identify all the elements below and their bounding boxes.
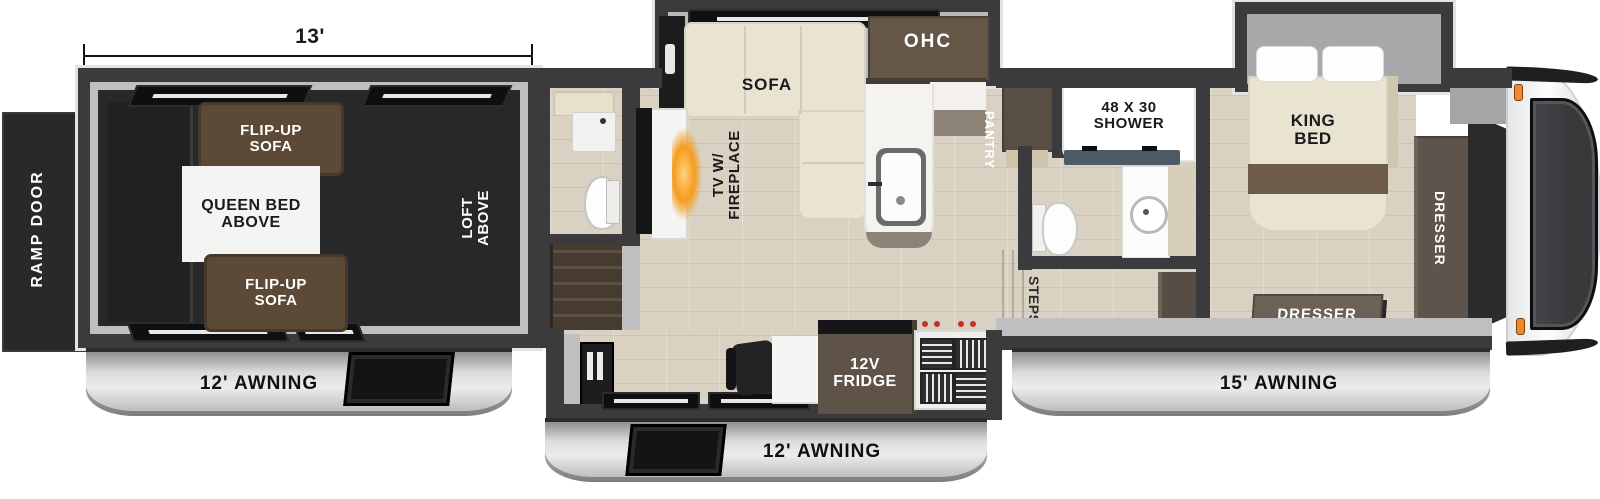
bedroom-awning-label: 15' AWNING [1164, 373, 1338, 395]
kitchen-counter-top [930, 82, 986, 110]
queen-bed-above-label: QUEEN BED ABOVE [201, 197, 301, 232]
chair-back [726, 348, 736, 390]
dimension-tick-left [83, 44, 85, 68]
ohc-label: OHC [878, 32, 978, 53]
garage-side-wall-panel [108, 102, 193, 322]
front-corner-filler [1450, 86, 1512, 124]
entry-door-window [587, 352, 593, 380]
bath-sink-icon [1130, 196, 1168, 234]
slideout-corner-window [665, 44, 675, 74]
ramp-door-label: RAMP DOOR [29, 129, 51, 329]
window-glass [382, 94, 491, 98]
tv-icon [636, 108, 652, 234]
burner-grate [920, 338, 954, 370]
sofa-seam [802, 162, 866, 164]
flip-up-sofa-bottom: FLIP-UP SOFA [204, 254, 348, 332]
bath-toilet-icon [1042, 202, 1078, 256]
window-glass [152, 94, 288, 98]
dimension-line [83, 55, 533, 57]
entry-door-window [597, 352, 603, 380]
entry-window-left [602, 392, 700, 410]
entry-step-garage [343, 352, 455, 406]
kitchen-lower-cabinet [934, 110, 986, 136]
burner-grate [920, 372, 954, 404]
side-table [772, 336, 820, 402]
stove-knob [958, 321, 964, 327]
kitchen-island-edge [866, 232, 932, 248]
entry-right-wall [986, 330, 1002, 420]
top-wall-segment [536, 68, 662, 88]
flip-up-sofa-top-label: FLIP-UP SOFA [240, 123, 302, 155]
shower-label: 48 X 30 SHOWER [1066, 100, 1192, 132]
marker-light-icon [1514, 84, 1523, 101]
loft-above-label: LOFT ABOVE [456, 163, 496, 273]
king-bed-label: KING BED [1248, 112, 1378, 149]
half-bath-bottom-wall [550, 234, 622, 244]
sofa-label: SOFA [712, 76, 822, 94]
fireplace-flame-icon [672, 128, 702, 220]
stove-knob [970, 321, 976, 327]
faucet-icon [600, 118, 606, 124]
flip-up-sofa-bottom-label: FLIP-UP SOFA [245, 277, 307, 309]
bath-left-wall [1018, 146, 1032, 270]
front-cap-bottom-rim [1506, 338, 1598, 355]
sofa-sectional-chaise [798, 110, 868, 220]
kitchen-sink-basin [881, 153, 921, 221]
dimension-tick-right [531, 44, 533, 68]
half-bath-vanity [572, 112, 616, 152]
bed-runner [1248, 164, 1388, 194]
pantry-label: PANTRY [982, 96, 996, 184]
pantry-cabinet [1002, 84, 1056, 152]
burner-grate [954, 338, 988, 370]
rv-floorplan: 13' RAMP DOOR FLIP-UP SOFA QUEEN BED ABO… [0, 0, 1600, 499]
bed-pillow [1256, 46, 1318, 82]
stove-knob [922, 321, 928, 327]
sofa-seam [800, 26, 802, 114]
top-wall-segment [996, 68, 1240, 88]
fridge-top [818, 320, 912, 334]
entry-step-mid [625, 424, 726, 476]
window-glass [614, 399, 687, 403]
shower-glass [1064, 150, 1180, 165]
garage-window-top-right [362, 85, 513, 107]
sofa-seam [744, 26, 746, 114]
entry-wall-trim [564, 334, 580, 414]
sofa-sectional-back [684, 22, 866, 118]
bed-side-rail [1388, 76, 1398, 168]
entry-awning: 12' AWNING [545, 418, 987, 482]
dresser-wardrobe-label: DRESSER [1432, 162, 1447, 294]
shower-door-handle [1082, 146, 1097, 151]
sink-drain [896, 196, 905, 205]
garage-dimension-label: 13' [190, 26, 430, 49]
bottom-wall-trim [996, 318, 1492, 338]
bed-pillow [1322, 46, 1384, 82]
front-window [1530, 98, 1598, 330]
stove-knob [934, 321, 940, 327]
top-wall-segment [1450, 68, 1512, 88]
loft-stairs [550, 244, 625, 330]
bath-vanity-side [1168, 166, 1194, 256]
king-bed [1248, 76, 1388, 232]
marker-light-icon [1516, 318, 1525, 335]
tv-fireplace-label: TV W/ FIREPLACE [704, 110, 750, 240]
burner-grate [954, 372, 988, 404]
garage-partition-wall [536, 68, 550, 348]
bedroom-awning: 15' AWNING [1012, 348, 1490, 416]
sink-faucet-icon [868, 182, 882, 186]
bedroom-partition-wall [1196, 68, 1210, 336]
queen-bed-above: QUEEN BED ABOVE [182, 166, 320, 262]
fridge-label: 12V FRIDGE [820, 338, 910, 408]
toilet-tank [606, 180, 620, 224]
flip-up-sofa-top: FLIP-UP SOFA [198, 102, 344, 176]
living-partition-halfwall [622, 246, 640, 332]
bath-sink-drain [1143, 209, 1149, 215]
shower-door-handle [1142, 146, 1157, 151]
